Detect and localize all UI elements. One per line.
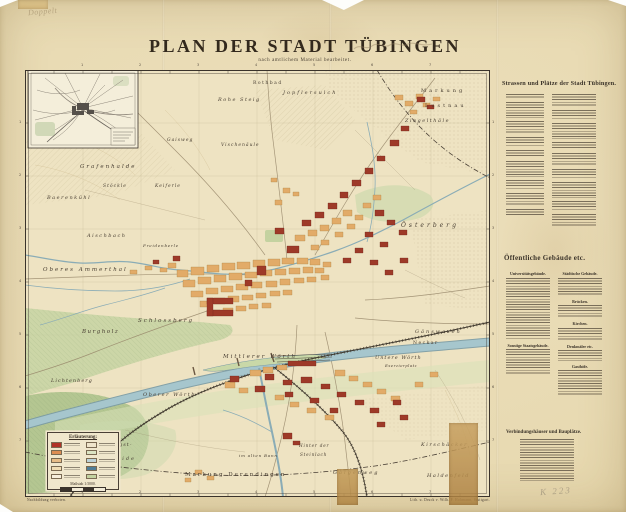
legend-swatch: [51, 442, 62, 448]
illegible-text-lines: [552, 182, 596, 198]
scale-label: Maßstab 1:5000.: [51, 482, 115, 486]
map-subtitle: nach amtlichem Material bearbeitet.: [110, 58, 500, 63]
frame-tick-number: 2: [492, 173, 494, 177]
buildings-index-title: Öffentliche Gebäude etc.: [504, 254, 626, 262]
frame-tick-number: 1: [19, 120, 21, 124]
streets-index: Strassen und Plätze der Stadt Tübingen.: [500, 80, 626, 230]
legend-entry: [86, 474, 115, 480]
scanned-map-page: Doppelt PLAN DER STADT TÜBINGEN nach amt…: [0, 0, 626, 512]
index-lines: [506, 278, 550, 340]
map-label: Lustnau: [425, 103, 467, 109]
legend-entry: [51, 466, 80, 472]
map-label: Oberer Wörth: [143, 392, 196, 398]
frame-tick-number: 5: [19, 332, 21, 336]
legend-swatch: [86, 458, 97, 464]
repair-tape: [337, 469, 358, 505]
legend-entry: [86, 466, 115, 472]
frame-tick-number: 1: [492, 120, 494, 124]
illegible-text-lines: [506, 193, 544, 206]
legend-entry: [51, 442, 80, 448]
map-label: Oberes Ammerthal: [43, 267, 128, 273]
map-label: Rohe Steig: [217, 97, 261, 103]
map-label: Untere Wörth: [375, 355, 422, 361]
buildings-index: Öffentliche Gebäude etc. Universitätsgeb…: [500, 254, 626, 399]
legend-swatch-label: [64, 443, 80, 446]
subheading-monuments: Denkmäler etc.: [558, 344, 602, 349]
map-label: Österberg: [401, 222, 459, 229]
legend-title: Erläuterung:: [51, 435, 115, 440]
index-lines: [558, 370, 602, 396]
illegible-text-lines: [558, 350, 602, 360]
map-label: im alten Bann: [239, 453, 278, 458]
illegible-text-lines: [558, 278, 602, 296]
city-map: Rothbad Jopflersulch Rohe Steig Markung …: [25, 70, 490, 497]
repair-tape: [449, 423, 478, 505]
fraternity-index-column: [520, 439, 574, 481]
frame-tick-number: 4: [19, 279, 21, 283]
legend-swatch-label: [64, 451, 80, 454]
illegible-text-lines: [552, 153, 596, 166]
subheading-city: Städtische Gebäude.: [558, 271, 602, 276]
illegible-text-lines: [552, 201, 596, 211]
legend-entry: [86, 458, 115, 464]
illegible-text-lines: [506, 161, 544, 177]
legend-swatch: [86, 466, 97, 472]
frame-tick-number: 2: [139, 63, 141, 67]
map-label: Gänswasen: [415, 329, 462, 335]
scale-bar: [60, 487, 106, 491]
illegible-text-lines: [558, 370, 602, 396]
map-label: Exerzierplatz: [384, 363, 418, 368]
fold-crease: [496, 0, 499, 512]
map-label: Ziegelthäle: [404, 118, 450, 124]
illegible-text-lines: [552, 94, 596, 107]
illegible-text-lines: [506, 180, 544, 190]
legend-swatch-label: [64, 459, 80, 462]
map-sheet: Doppelt PLAN DER STADT TÜBINGEN nach amt…: [0, 0, 626, 512]
index-lines: [558, 305, 602, 318]
legend-swatch: [51, 474, 62, 480]
legend-entry: [51, 458, 80, 464]
map-label: Hinter der: [298, 443, 330, 448]
index-lines: [506, 349, 550, 375]
legend-swatches-left: [51, 442, 80, 481]
subheading-university: Universitätsgebäude.: [506, 271, 550, 276]
inset-caption: [111, 128, 135, 145]
buildings-index-column: Städtische Gebäude. Brücken. Kirchen. De…: [558, 269, 602, 399]
inset-map: [28, 70, 138, 148]
legend-swatch-label: [99, 467, 115, 470]
illegible-text-lines: [506, 209, 544, 217]
pencil-catalog-number: K 223: [540, 485, 572, 497]
illegible-text-lines: [506, 137, 544, 147]
subheading-state: Sonstige Staatsgebäude.: [506, 343, 550, 348]
legend-entry: [51, 474, 80, 480]
frame-tick-number: 7: [429, 63, 431, 67]
index-lines: [558, 278, 602, 296]
frame-tick-number: 4: [492, 279, 494, 283]
map-label: Baerenkühl: [46, 195, 91, 201]
illegible-text-lines: [506, 278, 550, 340]
streets-index-title: Strassen und Plätze der Stadt Tübingen.: [502, 80, 626, 87]
legend-swatch: [51, 450, 62, 456]
illegible-text-lines: [552, 142, 596, 150]
legend-swatch-label: [99, 475, 115, 478]
frame-tick-number: 6: [371, 63, 373, 67]
frame-tick-number: 1: [81, 63, 83, 67]
map-label: Jopflersulch: [282, 90, 337, 96]
repair-tape: [18, 0, 48, 9]
map-label: Grafenhalde: [80, 164, 137, 170]
legend-swatch-label: [99, 451, 115, 454]
illegible-text-lines: [506, 102, 544, 118]
fraternity-index-title: Verbindungshäuser und Bauplätze.: [506, 430, 626, 435]
index-lines: [558, 328, 602, 341]
buildings-index-column: Universitätsgebäude. Sonstige Staatsgebä…: [506, 269, 550, 399]
illegible-text-lines: [552, 214, 596, 227]
illegible-text-lines: [506, 121, 544, 134]
frame-tick-number: 3: [197, 63, 199, 67]
legend-swatch: [51, 458, 62, 464]
index-lines: [558, 350, 602, 360]
frame-tick-number: 6: [19, 385, 21, 389]
map-legend: Erläuterung: Maßstab 1:5000.: [47, 432, 119, 490]
frame-tick-number: 4: [255, 63, 257, 67]
subheading-inns: Gasthöfe.: [558, 364, 602, 369]
map-label: Rothbad: [253, 80, 283, 86]
illegible-text-lines: [506, 150, 544, 158]
imprint-note: Nachbildung verboten.: [27, 498, 66, 502]
legend-entry: [51, 450, 80, 456]
frame-tick-number: 5: [313, 63, 315, 67]
map-label: Markung Derendingen: [185, 472, 286, 478]
map-label: Gaisweg: [167, 137, 193, 143]
paper-edge-notch: [322, 0, 364, 10]
legend-swatch-label: [64, 467, 80, 470]
map-label: Steinlach: [300, 452, 327, 457]
illegible-text-lines: [520, 439, 574, 481]
map-label: Schlossberg: [138, 318, 194, 324]
river-label: Neckar: [413, 340, 439, 346]
illegible-text-lines: [506, 94, 544, 99]
frame-tick-number: 3: [19, 226, 21, 230]
frame-tick-number: 6: [492, 385, 494, 389]
legend-swatch: [51, 466, 62, 472]
frame-tick-number: 5: [492, 332, 494, 336]
map-label: Burgholz: [81, 329, 119, 335]
paper-edge: [0, 0, 18, 7]
legend-swatches-right: [86, 442, 115, 481]
legend-swatch-label: [99, 459, 115, 462]
map-label: Stöckle: [103, 183, 127, 189]
pencil-scribble-icon: [352, 36, 442, 58]
map-label: Vischenäule: [221, 142, 260, 148]
fraternity-index: Verbindungshäuser und Bauplätze.: [500, 430, 626, 484]
frame-tick-number: 3: [492, 226, 494, 230]
paper-edge: [0, 504, 13, 512]
illegible-text-lines: [552, 123, 596, 139]
legend-swatch: [86, 450, 97, 456]
streets-index-column: [506, 94, 544, 230]
illegible-text-lines: [552, 110, 596, 120]
legend-swatch: [86, 442, 97, 448]
map-label: Freidenberle: [142, 243, 179, 248]
subheading-bridges: Brücken.: [558, 299, 602, 304]
frame-tick-number: 2: [19, 173, 21, 177]
frame-tick-number: 7: [492, 438, 494, 442]
illegible-text-lines: [558, 328, 602, 341]
index-panel: Strassen und Plätze der Stadt Tübingen. …: [500, 0, 626, 512]
legend-entry: [86, 442, 115, 448]
legend-swatch-label: [64, 475, 80, 478]
map-label: Keiferle: [154, 183, 181, 189]
illegible-text-lines: [558, 305, 602, 318]
map-label: Markung: [421, 88, 465, 94]
frame-tick-number: 7: [19, 438, 21, 442]
map-label: Mittlerer Wörth: [222, 354, 297, 360]
legend-entry: [86, 450, 115, 456]
legend-swatch: [86, 474, 97, 480]
subheading-churches: Kirchen.: [558, 321, 602, 326]
legend-entries: [51, 442, 115, 481]
illegible-text-lines: [552, 169, 596, 179]
streets-index-column: [552, 94, 596, 230]
map-label: Lichtenberg: [50, 378, 93, 384]
illegible-text-lines: [506, 349, 550, 375]
map-label: Aischbach: [86, 233, 127, 239]
legend-swatch-label: [99, 443, 115, 446]
